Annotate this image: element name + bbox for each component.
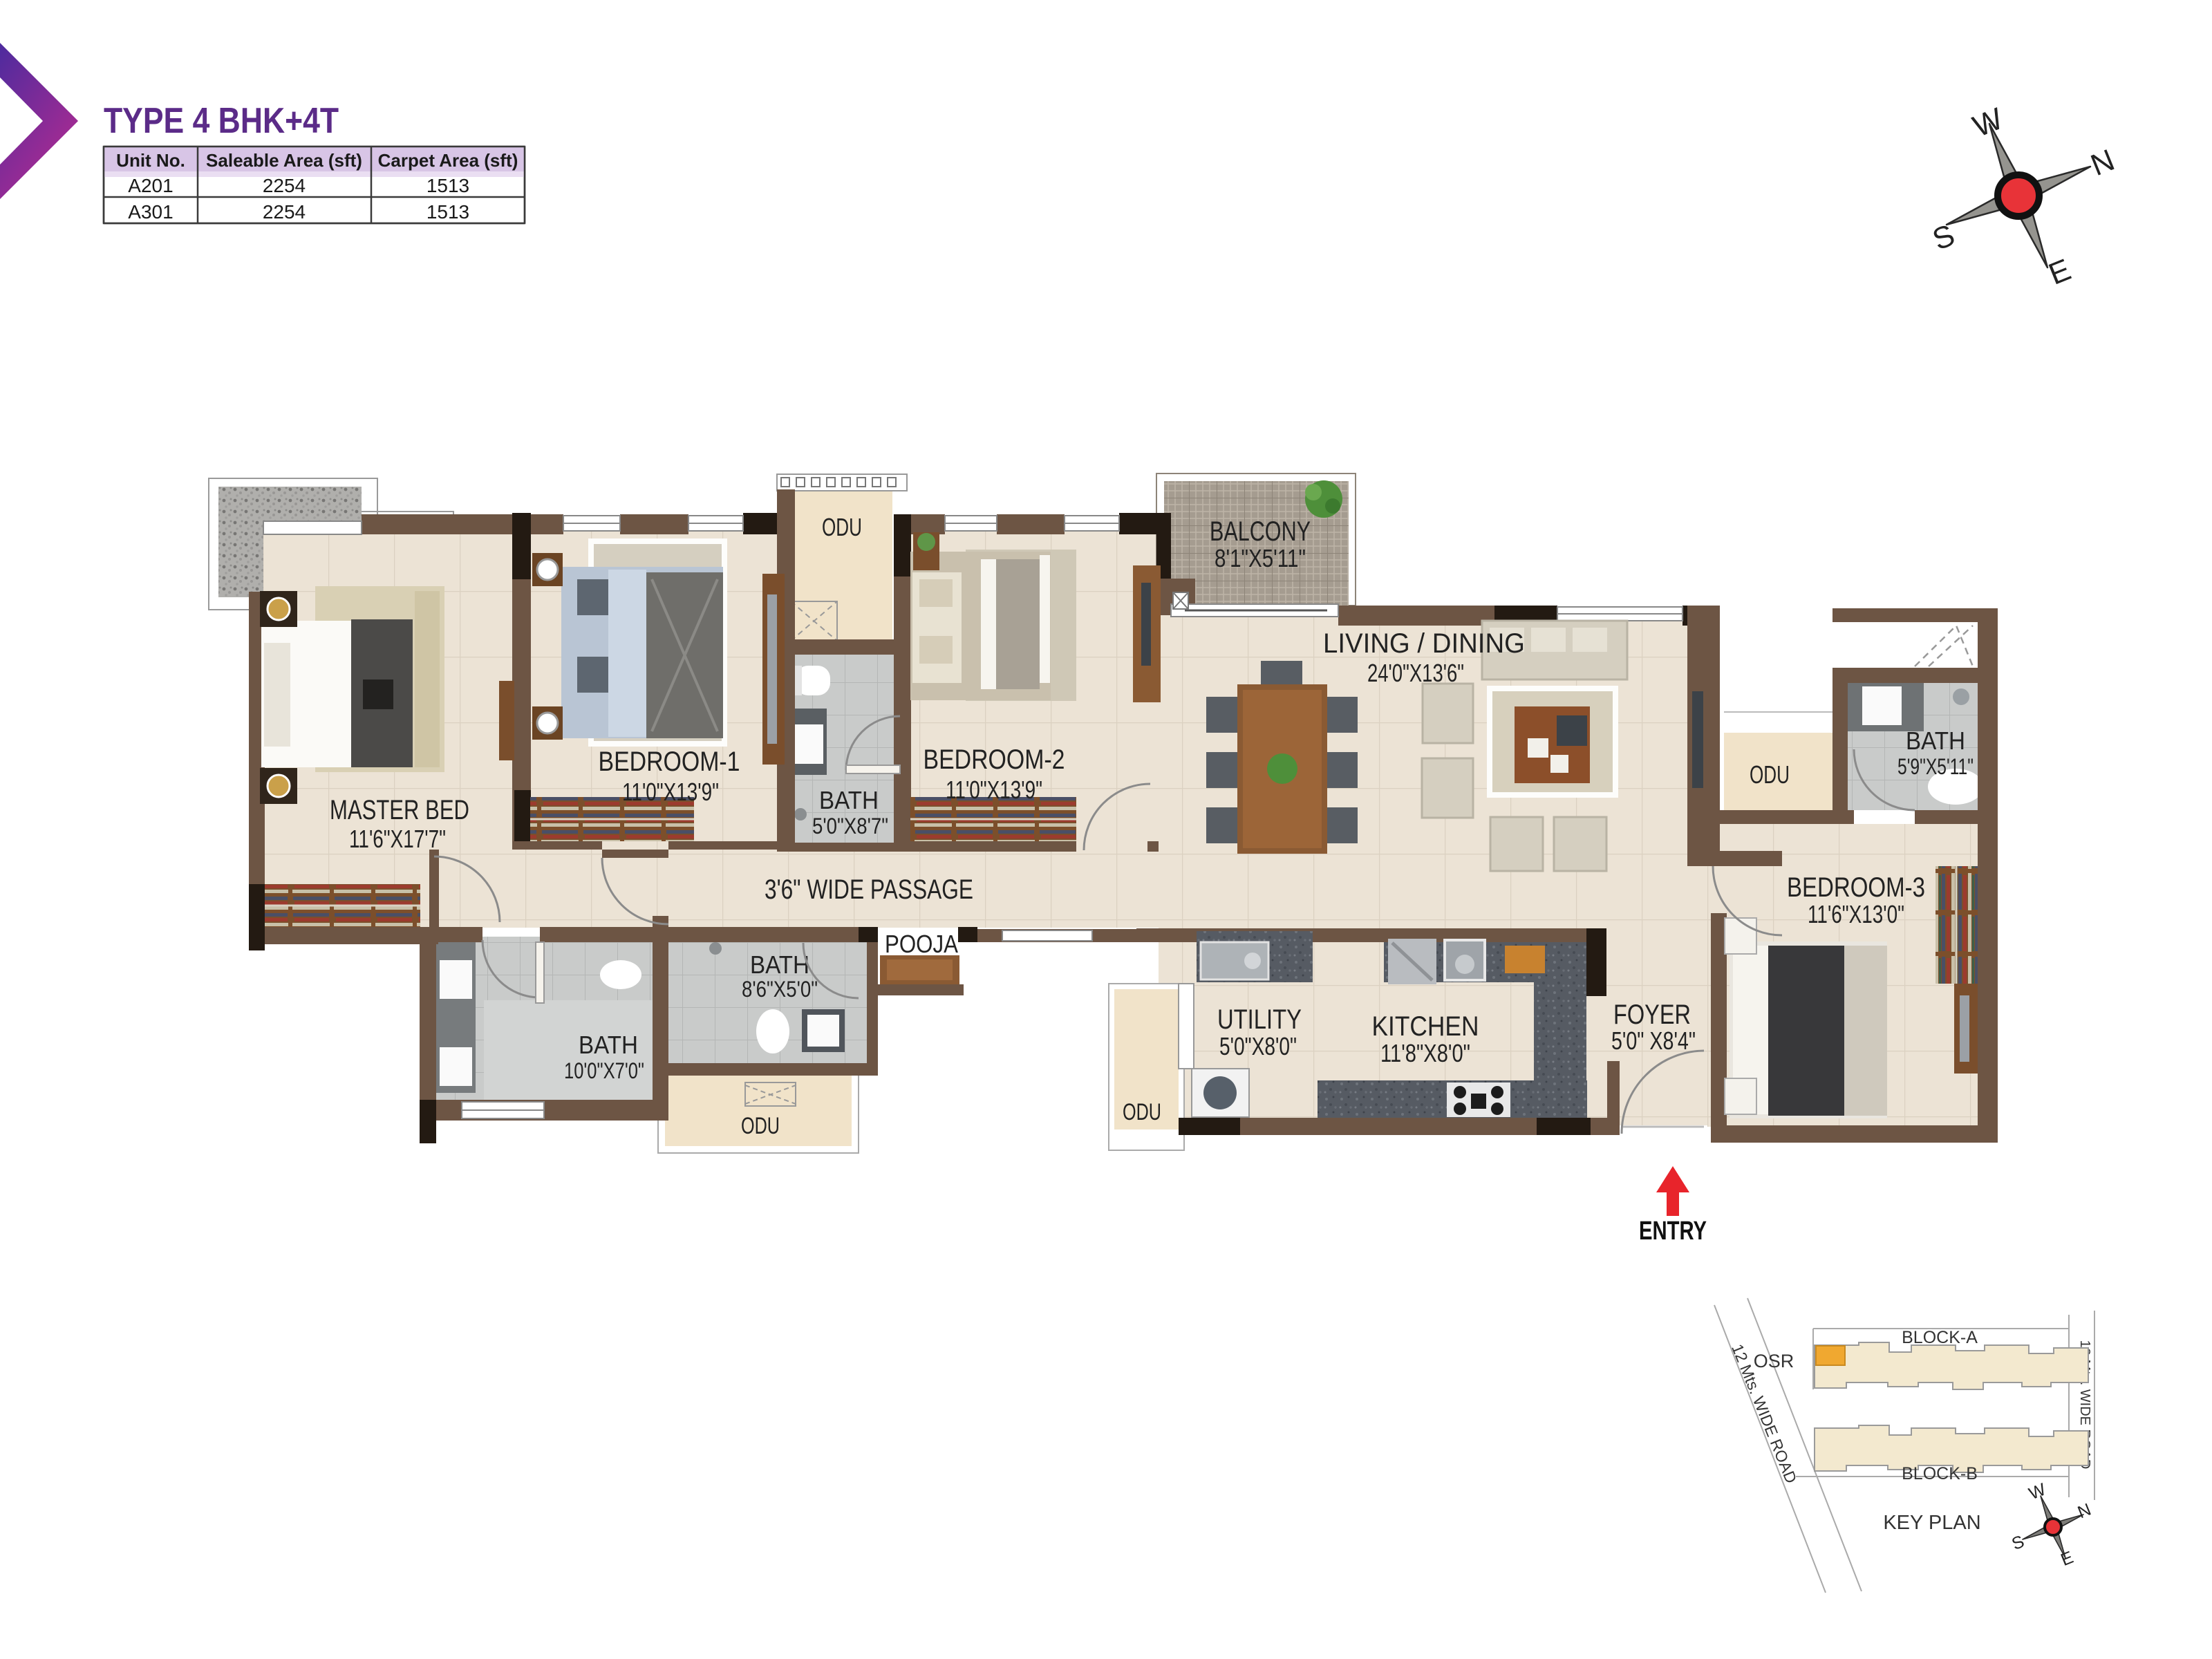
svg-text:UTILITY: UTILITY xyxy=(1217,1004,1302,1035)
svg-text:Unit No.: Unit No. xyxy=(116,150,185,171)
svg-text:ODU: ODU xyxy=(1123,1099,1161,1125)
svg-text:BEDROOM-2: BEDROOM-2 xyxy=(924,744,1065,775)
svg-text:BALCONY: BALCONY xyxy=(1210,516,1311,547)
svg-text:5'0"X8'0": 5'0"X8'0" xyxy=(1219,1032,1297,1060)
svg-text:1513: 1513 xyxy=(427,175,469,196)
svg-text:FOYER: FOYER xyxy=(1613,1000,1691,1030)
svg-text:POOJA: POOJA xyxy=(885,930,958,958)
svg-text:2254: 2254 xyxy=(263,175,306,196)
svg-text:A201: A201 xyxy=(128,175,173,196)
svg-text:BATH: BATH xyxy=(1906,727,1965,755)
svg-text:Carpet Area (sft): Carpet Area (sft) xyxy=(378,150,518,171)
svg-text:5'0"X8'7": 5'0"X8'7" xyxy=(812,814,888,838)
svg-text:BATH: BATH xyxy=(819,786,879,814)
svg-text:10'0"X7'0": 10'0"X7'0" xyxy=(564,1058,644,1083)
svg-text:LIVING / DINING: LIVING / DINING xyxy=(1323,628,1525,659)
svg-text:11'6"X17'7": 11'6"X17'7" xyxy=(349,825,446,853)
svg-text:1513: 1513 xyxy=(427,201,469,223)
svg-text:11'8"X8'0": 11'8"X8'0" xyxy=(1380,1039,1470,1067)
svg-text:KITCHEN: KITCHEN xyxy=(1372,1011,1479,1042)
svg-text:11'6"X13'0": 11'6"X13'0" xyxy=(1808,900,1904,928)
svg-text:A301: A301 xyxy=(128,201,173,223)
svg-text:24'0"X13'6": 24'0"X13'6" xyxy=(1367,659,1464,687)
svg-text:11'0"X13'9": 11'0"X13'9" xyxy=(622,778,719,806)
svg-text:BEDROOM-1: BEDROOM-1 xyxy=(599,747,740,777)
svg-text:ODU: ODU xyxy=(741,1113,780,1139)
svg-text:2254: 2254 xyxy=(263,201,306,223)
svg-text:ENTRY: ENTRY xyxy=(1639,1217,1707,1246)
svg-text:BATH: BATH xyxy=(579,1031,638,1059)
svg-text:ODU: ODU xyxy=(1750,760,1790,789)
svg-text:8'1"X5'11": 8'1"X5'11" xyxy=(1215,544,1306,572)
svg-text:OSR: OSR xyxy=(1754,1351,1794,1371)
svg-text:Saleable Area (sft): Saleable Area (sft) xyxy=(206,150,362,171)
svg-text:BLOCK-B: BLOCK-B xyxy=(1902,1464,1978,1483)
svg-text:KEY PLAN: KEY PLAN xyxy=(1883,1512,1980,1534)
svg-text:ODU: ODU xyxy=(822,513,862,541)
svg-text:5'9"X5'11": 5'9"X5'11" xyxy=(1897,754,1974,779)
svg-text:5'0" X8'4": 5'0" X8'4" xyxy=(1611,1027,1696,1055)
svg-text:11'0"X13'9": 11'0"X13'9" xyxy=(946,776,1042,804)
svg-text:MASTER BED: MASTER BED xyxy=(330,795,469,825)
svg-text:BLOCK-A: BLOCK-A xyxy=(1902,1328,1978,1347)
svg-text:8'6"X5'0": 8'6"X5'0" xyxy=(742,977,818,1002)
svg-text:BATH: BATH xyxy=(750,950,809,979)
svg-text:TYPE 4 BHK+4T: TYPE 4 BHK+4T xyxy=(104,101,339,141)
svg-text:3'6" WIDE PASSAGE: 3'6" WIDE PASSAGE xyxy=(765,874,973,905)
svg-text:BEDROOM-3: BEDROOM-3 xyxy=(1787,872,1925,903)
